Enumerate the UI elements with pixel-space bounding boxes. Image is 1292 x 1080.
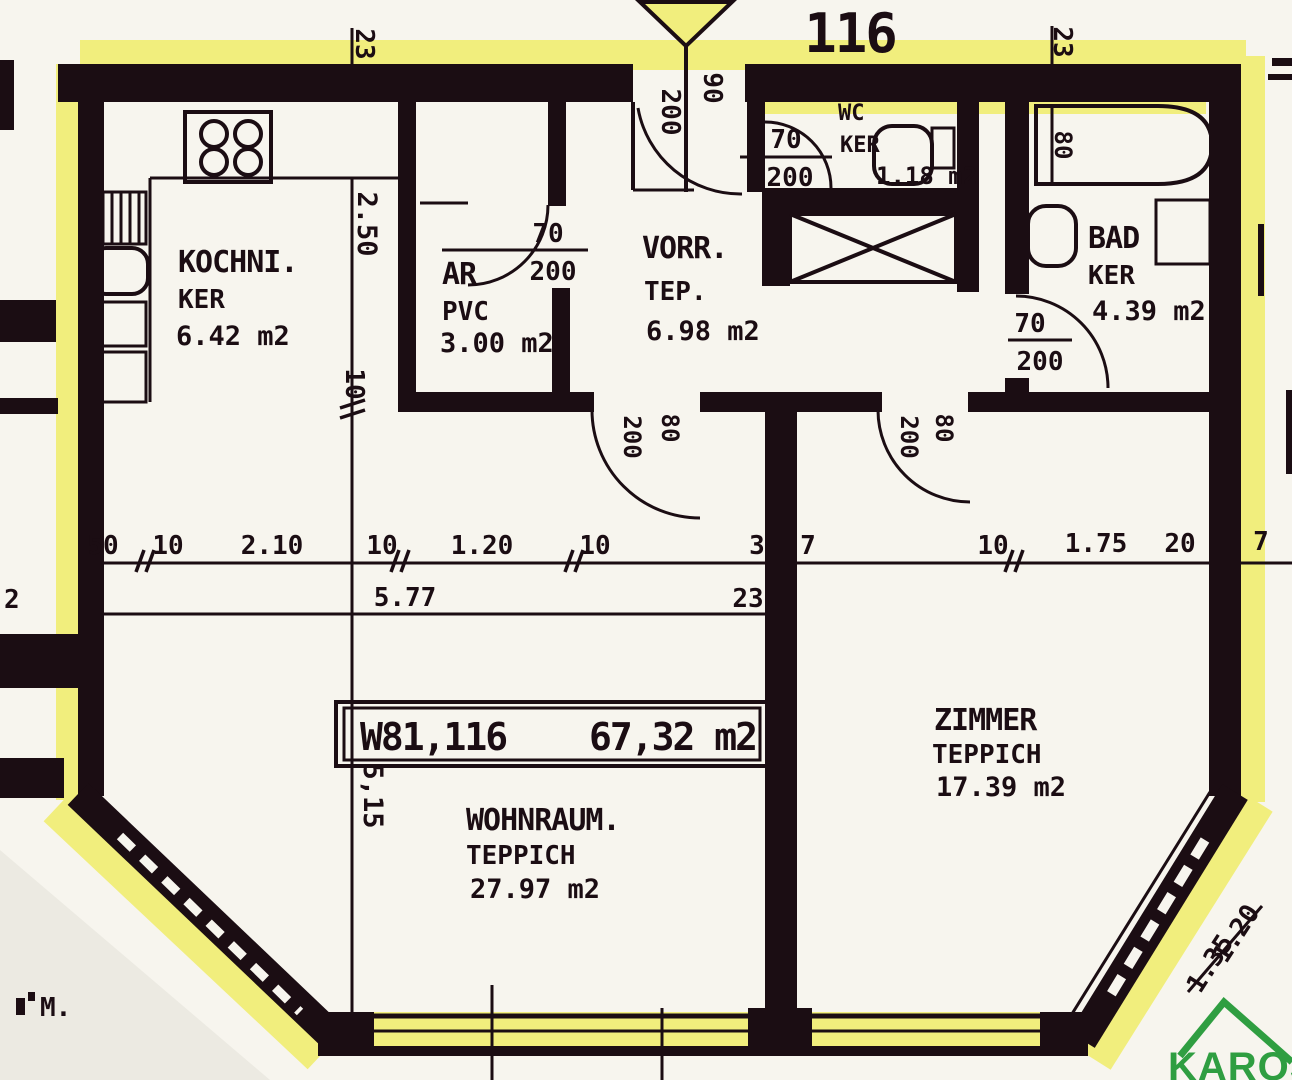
unit-id: W81,116 bbox=[360, 715, 506, 759]
bad-door-width: 70 bbox=[1014, 309, 1045, 339]
wc-floor: KER bbox=[840, 133, 880, 158]
shaft bbox=[790, 214, 956, 282]
dim-main-0: 50 bbox=[87, 531, 118, 561]
bad-door-height: 200 bbox=[1017, 347, 1064, 377]
dim-kitchen-wall: 10 bbox=[339, 368, 369, 399]
dim-top-left: 23 bbox=[349, 28, 379, 59]
dim-main-7: 7 bbox=[800, 531, 816, 561]
dim-sub-wall: 23 bbox=[732, 584, 763, 614]
unit-area: 67,32 m2 bbox=[589, 715, 756, 759]
dim-sub-left: 2 bbox=[4, 585, 20, 615]
zimmer-name: ZIMMER bbox=[934, 703, 1038, 738]
dim-main-10: 20 bbox=[1164, 529, 1195, 559]
dim-main-11: 7 bbox=[1253, 527, 1269, 557]
dim-main-5: 10 bbox=[579, 531, 610, 561]
entrance-door-height: 200 bbox=[655, 89, 685, 136]
karos-logo-text: KAROS bbox=[1168, 1045, 1292, 1080]
wohnraum-floor: TEPPICH bbox=[466, 841, 576, 871]
zimmer-area: 17.39 m2 bbox=[936, 772, 1066, 803]
floorplan-document: W81,116 67,32 m2 116 KOCHNI. KER 6.42 m2… bbox=[0, 0, 1292, 1080]
wohnraum-door-width: 80 bbox=[656, 414, 684, 443]
abstellraum-floor: PVC bbox=[442, 297, 489, 327]
abstellraum-area: 3.00 m2 bbox=[440, 328, 554, 359]
abstellraum-name: AR bbox=[442, 257, 478, 292]
kochnische-name: KOCHNI. bbox=[178, 245, 297, 280]
apartment-number: 116 bbox=[804, 2, 896, 65]
dim-main-9: 1.75 bbox=[1065, 529, 1128, 559]
vorraum-area: 6.98 m2 bbox=[646, 316, 760, 347]
wohnraum-door-height: 200 bbox=[618, 415, 646, 458]
bad-area: 4.39 m2 bbox=[1092, 296, 1206, 327]
dim-main-4: 1.20 bbox=[451, 531, 514, 561]
ar-door-width: 70 bbox=[532, 219, 563, 249]
dim-main-2: 2.10 bbox=[241, 531, 304, 561]
wohnraum-area: 27.97 m2 bbox=[470, 874, 600, 905]
bad-name: BAD bbox=[1088, 221, 1139, 256]
vorraum-name: VORR. bbox=[642, 231, 727, 266]
corner-text: M. bbox=[40, 993, 71, 1023]
dim-main-3: 10 bbox=[366, 531, 397, 561]
zimmer-door-height: 200 bbox=[895, 415, 923, 458]
wc-door-width: 70 bbox=[770, 125, 801, 155]
dim-kitchen-depth: 2.50 bbox=[351, 191, 382, 256]
dim-bathtub: 80 bbox=[1049, 131, 1077, 160]
kochnische-floor: KER bbox=[178, 285, 225, 315]
zimmer-door-width: 80 bbox=[930, 414, 958, 443]
zimmer-floor: TEPPICH bbox=[932, 740, 1042, 770]
dim-living-depth: 5,15 bbox=[357, 763, 388, 828]
vorraum-floor: TEP. bbox=[644, 277, 707, 307]
ar-door-height: 200 bbox=[530, 257, 577, 287]
floorplan-drawing: W81,116 67,32 m2 116 KOCHNI. KER 6.42 m2… bbox=[0, 0, 1292, 1080]
dim-main-6: 3 bbox=[749, 531, 765, 561]
dim-main-8: 10 bbox=[977, 531, 1008, 561]
wc-door-height: 200 bbox=[767, 163, 814, 193]
bad-floor: KER bbox=[1088, 261, 1135, 291]
dim-main-1: 10 bbox=[152, 531, 183, 561]
dim-sub-width: 5.77 bbox=[374, 583, 437, 613]
wohnraum-name: WOHNRAUM. bbox=[466, 803, 620, 838]
entrance-door-width: 90 bbox=[697, 72, 727, 103]
dim-top-right: 23 bbox=[1047, 26, 1077, 57]
wc-name: WC bbox=[838, 101, 865, 126]
kochnische-area: 6.42 m2 bbox=[176, 321, 290, 352]
wc-area: 1.18 m2 bbox=[876, 162, 977, 190]
